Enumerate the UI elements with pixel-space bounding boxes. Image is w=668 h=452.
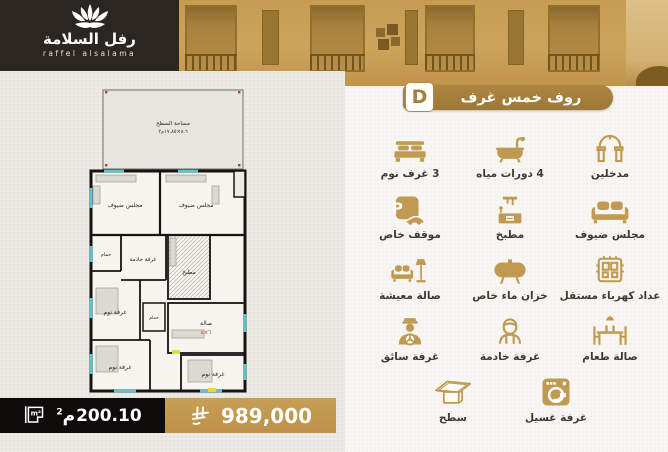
- washer-icon: [538, 370, 574, 410]
- feature-label: 3 غرف نوم: [381, 168, 440, 180]
- svg-text:P: P: [392, 200, 403, 218]
- feature-label: صالة معيشة: [379, 290, 441, 302]
- facade-window: [185, 5, 237, 72]
- roof-label: مساحة السطح: [156, 121, 190, 127]
- feature-item: مدخلين: [560, 126, 660, 187]
- feature-label: سطح: [439, 412, 467, 424]
- feature-item: Pموقف خاص: [360, 187, 460, 248]
- area-chip: m² 200.10 م2: [0, 398, 165, 433]
- tank-icon: [490, 248, 530, 288]
- flyer: رفل السلامة raffel alsalama مساحة السطح …: [0, 0, 668, 452]
- roof-dims: ٨.٦×١٧.٨٥م٢: [158, 129, 188, 135]
- unit-title: روف خمس غرف: [403, 90, 613, 106]
- bathtub-icon: [492, 126, 528, 166]
- feature-item: غرفة سائق: [360, 309, 460, 370]
- brand-name-arabic: رفل السلامة: [43, 32, 136, 47]
- unit-letter-badge: D: [405, 82, 434, 112]
- room-label: مطبخ: [182, 269, 196, 276]
- feature-label: موقف خاص: [379, 229, 441, 241]
- brand-name-latin: raffel alsalama: [43, 49, 136, 58]
- feature-item: مجلس ضيوف: [560, 187, 660, 248]
- lotus-icon: [67, 2, 113, 32]
- saudi-riyal-icon: [189, 403, 213, 429]
- facade-window: [425, 5, 475, 72]
- arch-icon: [593, 126, 627, 166]
- bed-icon: [391, 126, 429, 166]
- maid-icon: [493, 309, 527, 349]
- parking-icon: P: [391, 187, 429, 227]
- room-label: حمام: [101, 252, 112, 258]
- price-value: 989,000: [221, 404, 312, 428]
- price-chip: 989,000: [165, 398, 336, 433]
- feature-item: سطح: [433, 370, 473, 431]
- feature-item: 3 غرف نوم: [360, 126, 460, 187]
- feature-label: مطبخ: [496, 229, 525, 241]
- features-grid: مدخلين4 دورات مياه3 غرف نوممجلس ضيوفمطبخ…: [360, 126, 660, 370]
- room-label: صالة: [200, 320, 212, 327]
- room-label: مجلس ضيوف: [179, 202, 214, 209]
- room-label: حمام: [149, 316, 159, 321]
- kitchen-icon: [492, 187, 528, 227]
- feature-item: غرفة غسيل: [525, 370, 587, 431]
- feature-label: خزان ماء خاص: [472, 290, 547, 302]
- facade-window: [310, 5, 365, 72]
- feature-item: مطبخ: [460, 187, 560, 248]
- area-number: 200.10: [76, 406, 142, 426]
- feature-item: صالة معيشة: [360, 248, 460, 309]
- dining-icon: [591, 309, 629, 349]
- area-unit: م2: [56, 406, 75, 426]
- meter-icon: [592, 248, 628, 288]
- facade-window-narrow: [405, 10, 418, 65]
- feature-item: 4 دورات مياه: [460, 126, 560, 187]
- pricing-bar: m² 200.10 م2 989,000: [0, 398, 336, 433]
- unit-title-badge: D روف خمس غرف: [403, 85, 613, 110]
- room-label: غرفة نوم: [109, 364, 132, 371]
- feature-label: صالة طعام: [582, 351, 638, 363]
- floor-plan-drawing: مساحة السطح ٨.٦×١٧.٨٥م٢: [88, 88, 254, 396]
- feature-item: صالة طعام: [560, 309, 660, 370]
- feature-label: مجلس ضيوف: [575, 229, 645, 241]
- feature-label: غرفة خادمة: [480, 351, 540, 363]
- facade-window-narrow: [262, 10, 279, 65]
- area-value: 200.10 م2: [56, 406, 141, 426]
- feature-label: غرفة غسيل: [525, 412, 587, 424]
- feature-label: 4 دورات مياه: [476, 168, 544, 180]
- facade-window-narrow: [508, 10, 524, 65]
- svg-text:m²: m²: [31, 408, 41, 417]
- roof-icon: [433, 370, 473, 410]
- room-label: غرفة نوم: [202, 371, 225, 378]
- hall-dimensions: ٦×٤: [201, 330, 212, 336]
- feature-item: عداد كهرباء مستقل: [560, 248, 660, 309]
- sofa-icon: [590, 187, 630, 227]
- features-last-row: غرفة غسيلسطح: [360, 370, 660, 431]
- room-label: غرفة نوم: [104, 309, 127, 316]
- living-icon: [390, 248, 430, 288]
- area-m2-icon: m²: [23, 403, 49, 429]
- facade-motif: [376, 24, 402, 52]
- feature-item: غرفة خادمة: [460, 309, 560, 370]
- room-label: مجلس ضيوف: [108, 202, 143, 209]
- feature-label: غرفة سائق: [381, 351, 439, 363]
- driver-icon: [392, 309, 428, 349]
- brand-logo: رفل السلامة raffel alsalama: [0, 0, 179, 71]
- feature-item: خزان ماء خاص: [460, 248, 560, 309]
- feature-label: مدخلين: [591, 168, 629, 180]
- feature-label: عداد كهرباء مستقل: [560, 290, 661, 302]
- room-label: غرفة خادمة: [130, 257, 157, 263]
- facade-window: [548, 5, 600, 72]
